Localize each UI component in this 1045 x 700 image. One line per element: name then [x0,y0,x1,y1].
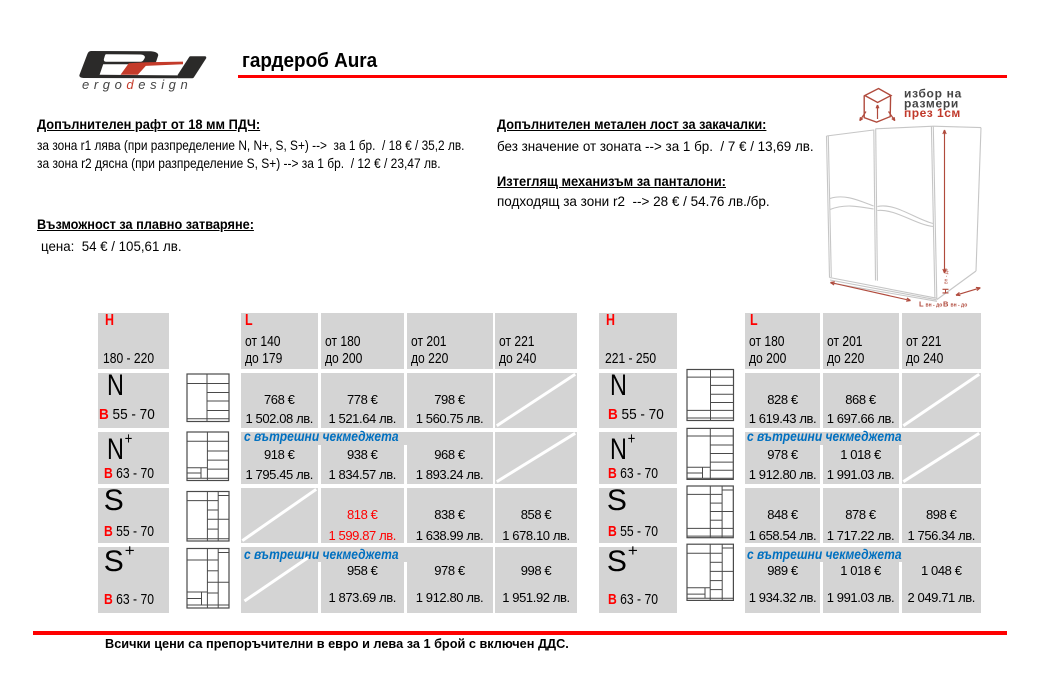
svg-text:през 1см: през 1см [904,106,961,120]
svg-text:H: H [942,288,951,294]
svg-text:вн - до: вн - до [944,268,950,284]
svg-text:ergodesign: ergodesign [82,77,192,92]
svg-text:L вн - до: L вн - до [919,300,942,309]
svg-text:B вн - до: B вн - до [943,300,967,309]
